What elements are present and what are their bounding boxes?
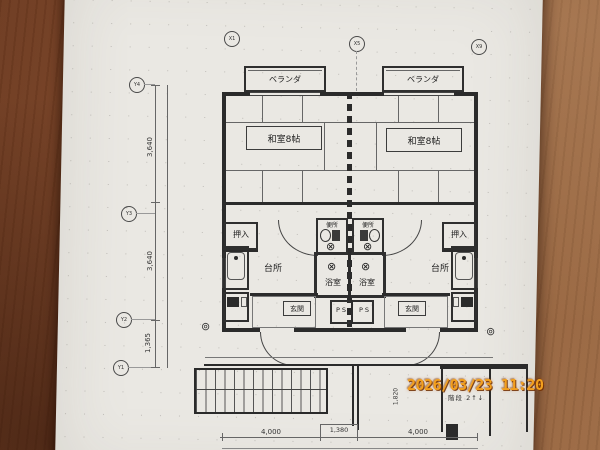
wall-mid — [222, 202, 478, 205]
walkway-line-upper — [205, 357, 493, 358]
dimension-line-total — [222, 448, 478, 449]
closet-left-label: 押入 — [226, 229, 256, 240]
fan-icon: ⊗ — [326, 241, 335, 252]
dim-tick — [151, 85, 160, 86]
tatami-line — [376, 122, 377, 170]
entrance-right-label: 玄関 — [398, 301, 426, 316]
grid-marker-x5-label: X5 — [354, 41, 361, 47]
dim-bottom-right: 4,000 — [388, 428, 448, 436]
fan-icon: ⊗ — [361, 261, 370, 272]
wall-below-right — [357, 366, 359, 430]
pipe-space-left-label: P S — [332, 306, 350, 314]
balcony-right-label: ベランダ — [390, 74, 456, 85]
balcony-left-label: ベランダ — [252, 74, 318, 85]
tatami-line — [352, 170, 474, 171]
grid-marker-y3-label: Y3 — [126, 211, 132, 217]
grid-marker-x1-label: X1 — [229, 36, 236, 42]
wall-bottom-center — [294, 328, 406, 332]
center-axis-line — [356, 51, 357, 91]
kitchen-left-label: 台所 — [260, 261, 286, 274]
bath-left-label: 浴室 — [321, 277, 345, 288]
dim-bracket — [320, 424, 357, 425]
wall-segment — [222, 250, 258, 252]
photo-of-floor-plan: X1 X5 X9 Y4 Y3 Y2 Y1 3,640 3,640 1,365 ベ… — [0, 0, 600, 450]
stairs — [194, 368, 328, 414]
dim-left-mid: 3,640 — [146, 246, 154, 276]
pipe-space-divider — [351, 300, 353, 324]
fan-icon: ⊗ — [327, 261, 336, 272]
grid-marker-x9: X9 — [471, 39, 487, 55]
tatami-line — [262, 170, 263, 202]
balcony-right-rail — [386, 70, 460, 71]
grid-marker-y2: Y2 — [116, 312, 132, 328]
tatami-line — [398, 96, 399, 122]
pipe-space-right-label: P S — [355, 306, 373, 314]
dimension-line-left-2 — [167, 85, 168, 368]
stove-right — [461, 297, 473, 307]
grid-marker-y1: Y1 — [113, 360, 129, 376]
camera-timestamp: 2026/03/23 11:20 — [407, 376, 544, 394]
grid-marker-x9-label: X9 — [476, 44, 483, 50]
grid-marker-y2-label: Y2 — [121, 317, 127, 323]
bath-divider-wall — [348, 252, 351, 298]
wall-bottom-right — [440, 328, 478, 332]
meter-icon: ⊚ — [486, 326, 495, 337]
closet-right-label: 押入 — [444, 229, 474, 240]
room-label-tatami-right: 和室8帖 — [386, 128, 462, 152]
window-balcony-left — [250, 92, 320, 96]
bath-right-label: 浴室 — [355, 277, 379, 288]
stove-right-side — [453, 297, 459, 307]
dim-tick — [477, 433, 478, 441]
dim-tick — [222, 433, 223, 441]
dim-left-bottom: 1,365 — [144, 328, 152, 358]
dim-tick — [151, 202, 160, 203]
tatami-line — [438, 170, 439, 202]
dim-left-top: 3,640 — [146, 132, 154, 162]
grid-marker-y4-label: Y4 — [134, 82, 140, 88]
dim-bottom-left: 4,000 — [241, 428, 301, 436]
toilet-right-label: 便所 — [358, 220, 378, 229]
wall-bottom-left — [222, 328, 260, 332]
grid-marker-x5: X5 — [349, 36, 365, 52]
grid-marker-y3: Y3 — [121, 206, 137, 222]
room-label-tatami-left: 和室8帖 — [246, 126, 322, 150]
kitchen-right-label: 台所 — [427, 261, 453, 274]
toilet-left-label: 便所 — [322, 220, 342, 229]
tatami-line — [302, 96, 303, 122]
fan-icon: ⊗ — [363, 241, 372, 252]
stairs-mid-line — [196, 389, 326, 390]
dim-bottom-center: 1,380 — [321, 426, 357, 434]
dim-bracket-tick — [357, 424, 358, 437]
tatami-line — [262, 96, 263, 122]
wall-below-left — [352, 366, 354, 430]
tatami-line — [226, 122, 347, 123]
dim-stair: 1,820 — [393, 379, 400, 415]
window-balcony-right — [384, 92, 454, 96]
stove-left-side — [241, 297, 247, 307]
grid-extension-line — [136, 213, 155, 214]
tatami-line — [226, 170, 347, 171]
faucet-right — [462, 256, 466, 260]
tatami-line — [302, 170, 303, 202]
dim-tick — [151, 367, 160, 368]
tatami-line — [324, 122, 325, 170]
wall-segment — [442, 250, 478, 252]
tatami-line — [352, 122, 474, 123]
lower-structure-top — [440, 366, 528, 369]
balcony-left-rail — [248, 70, 322, 71]
tatami-line — [438, 96, 439, 122]
tatami-line — [398, 170, 399, 202]
meter-icon: ⊚ — [201, 321, 210, 332]
stove-left — [227, 297, 239, 307]
grid-marker-y1-label: Y1 — [118, 365, 124, 371]
dimension-line-bottom — [220, 437, 478, 438]
entrance-left-label: 玄関 — [283, 301, 311, 316]
grid-marker-x1: X1 — [224, 31, 240, 47]
faucet-left — [234, 256, 238, 260]
grid-marker-y4: Y4 — [129, 77, 145, 93]
dimension-line-left — [155, 85, 156, 368]
dim-tick — [151, 320, 160, 321]
